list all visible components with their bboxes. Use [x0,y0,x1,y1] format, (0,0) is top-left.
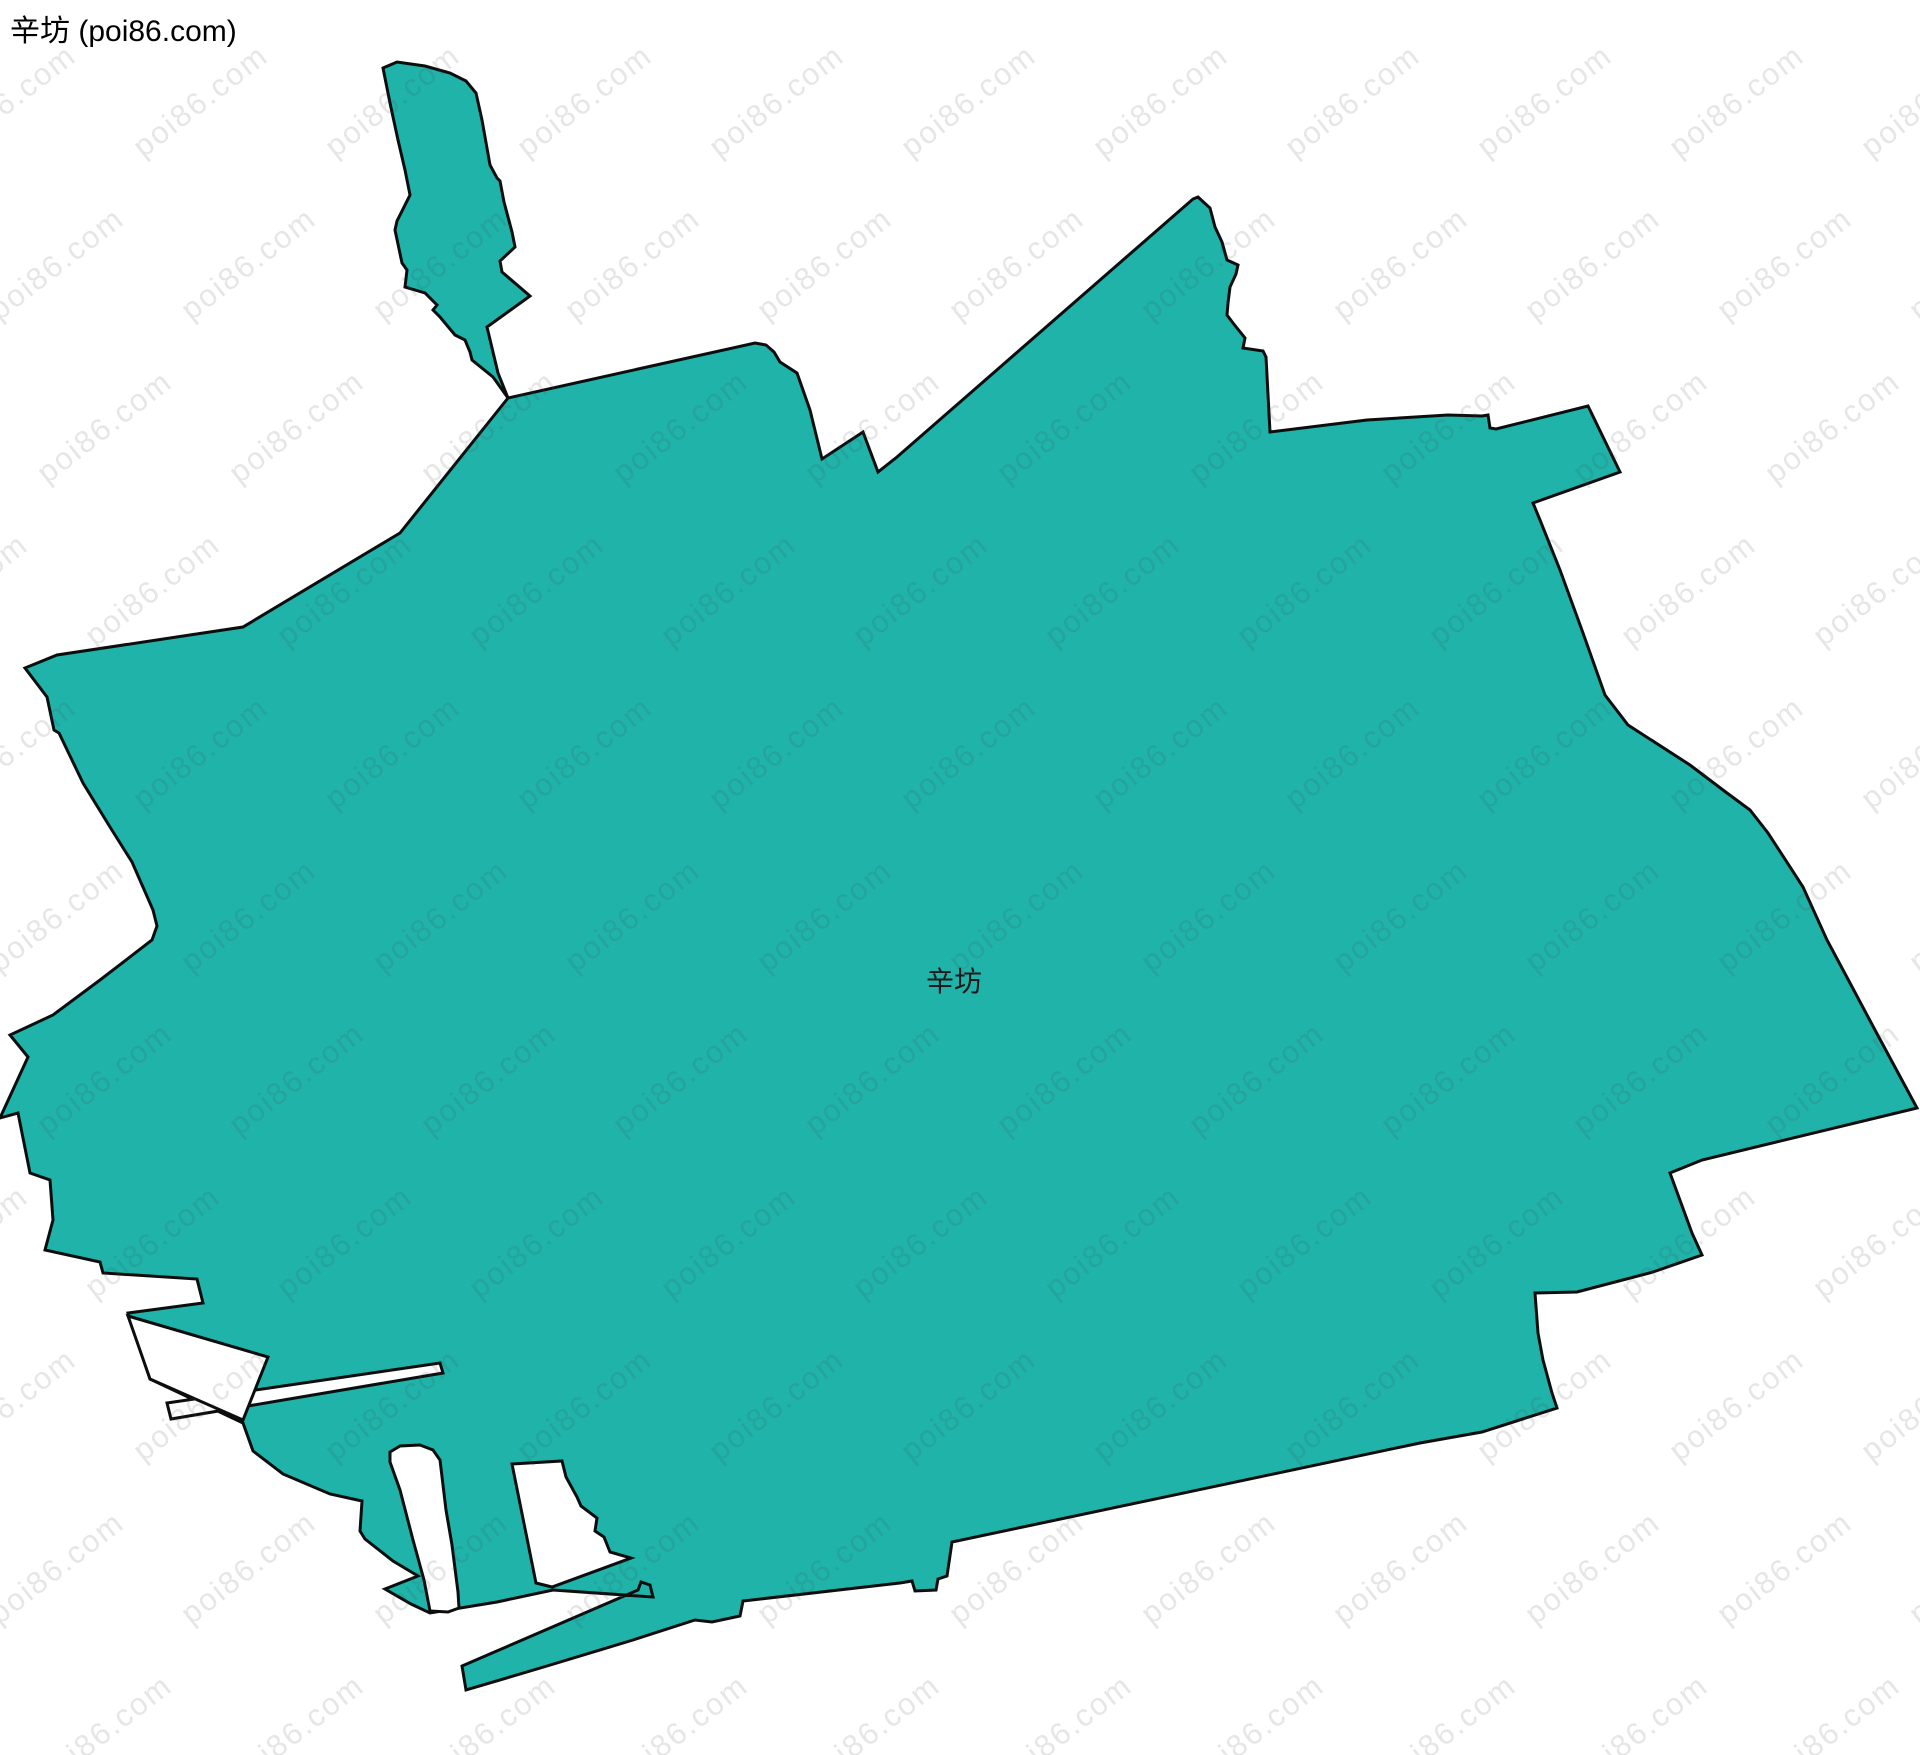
map-page: poi86.compoi86.compoi86.compoi86.compoi8… [0,0,1920,1755]
region-polygon [0,62,1917,1690]
region-label: 辛坊 [926,960,982,1000]
page-title: 辛坊 (poi86.com) [10,6,237,50]
map-canvas [0,0,1920,1755]
